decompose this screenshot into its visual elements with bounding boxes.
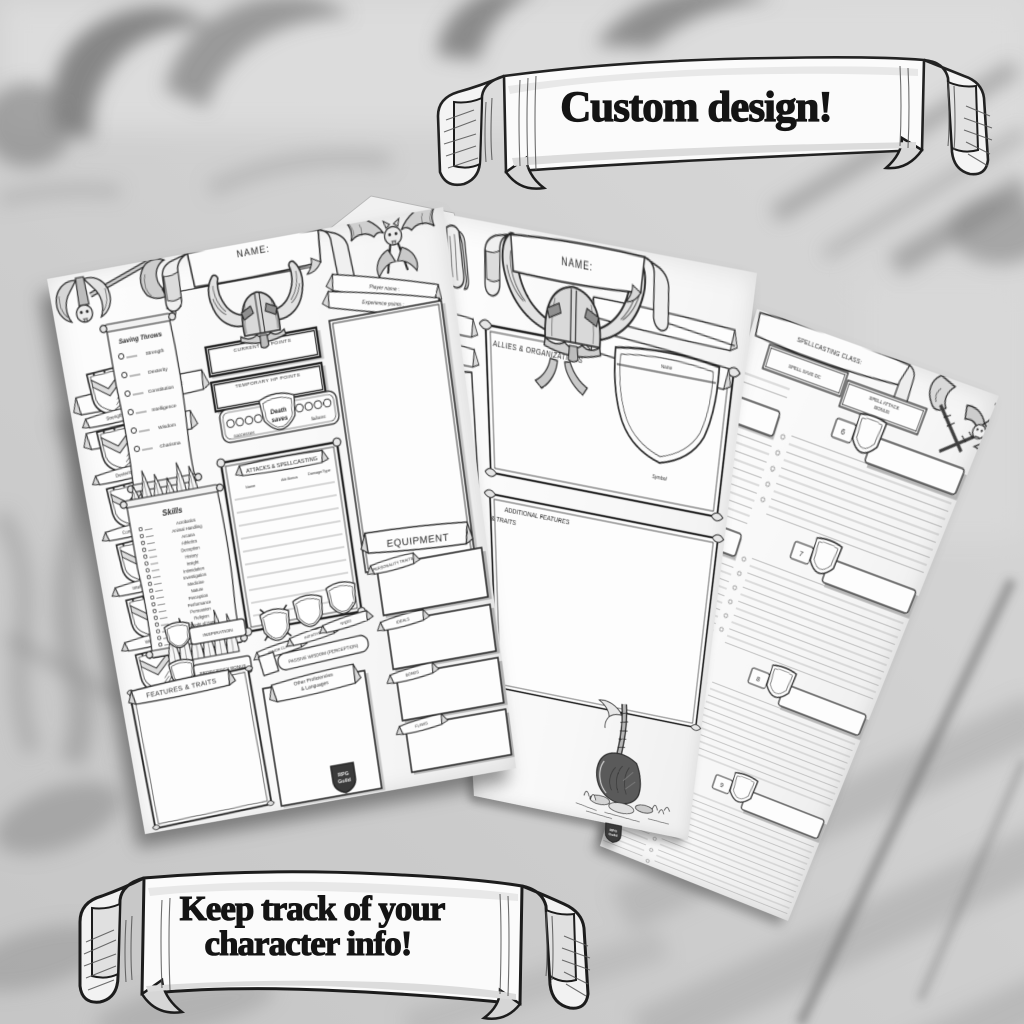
svg-text:character info!: character info! <box>205 924 412 963</box>
svg-text:Keep track of your: Keep track of your <box>180 889 445 928</box>
svg-text:Custom design!: Custom design! <box>560 84 832 131</box>
